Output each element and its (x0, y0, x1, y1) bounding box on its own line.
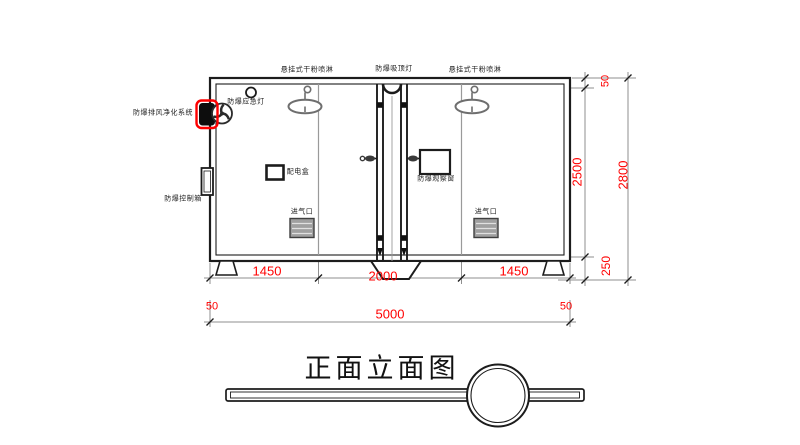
foot-right (543, 261, 564, 275)
control-box-symbol (202, 168, 214, 195)
dim-bay-center: 2000 (369, 270, 398, 283)
dim-top-margin: 50 (601, 75, 612, 87)
power-box-label: 配电盒 (287, 169, 310, 176)
dim-base-height: 250 (600, 256, 612, 276)
control-box-label: 防爆控制箱 (164, 196, 202, 203)
observation-window-symbol (420, 150, 450, 174)
sprinkler-left-label: 悬挂式干粉喷淋 (281, 67, 334, 74)
air-inlet-left-label: 进气口 (291, 209, 314, 216)
foot-left (216, 261, 237, 275)
sprinkler-right-label: 悬挂式干粉喷淋 (449, 67, 502, 74)
air-inlet-right-label: 进气口 (475, 209, 498, 216)
elevation-drawing-canvas: 悬挂式干粉喷淋 防爆吸顶灯 悬挂式干粉喷淋 防爆应急灯 防爆排风净化系统 防爆控… (0, 0, 800, 445)
dim-bay-right: 1450 (500, 265, 529, 278)
air-inlet-right-symbol (474, 219, 498, 238)
ceiling-lamp-label: 防爆吸顶灯 (375, 66, 413, 73)
power-box-symbol (267, 166, 284, 180)
dim-wall-left: 50 (206, 302, 218, 313)
title-circle (467, 365, 529, 427)
dim-overall-height: 2800 (617, 161, 630, 190)
drawing-title: 正面立面图 (305, 356, 460, 383)
emergency-light-symbol (246, 88, 256, 98)
dim-bay-left: 1450 (253, 265, 282, 278)
air-inlet-left-symbol (290, 219, 314, 238)
dim-wall-right: 50 (560, 302, 572, 313)
dim-overall-width: 5000 (376, 308, 405, 321)
observation-window-label: 防爆观察窗 (417, 176, 455, 183)
emergency-light-label: 防爆应急灯 (227, 99, 265, 106)
purification-system-label: 防爆排风净化系统 (133, 110, 193, 117)
dim-interior-height: 2500 (571, 158, 584, 187)
